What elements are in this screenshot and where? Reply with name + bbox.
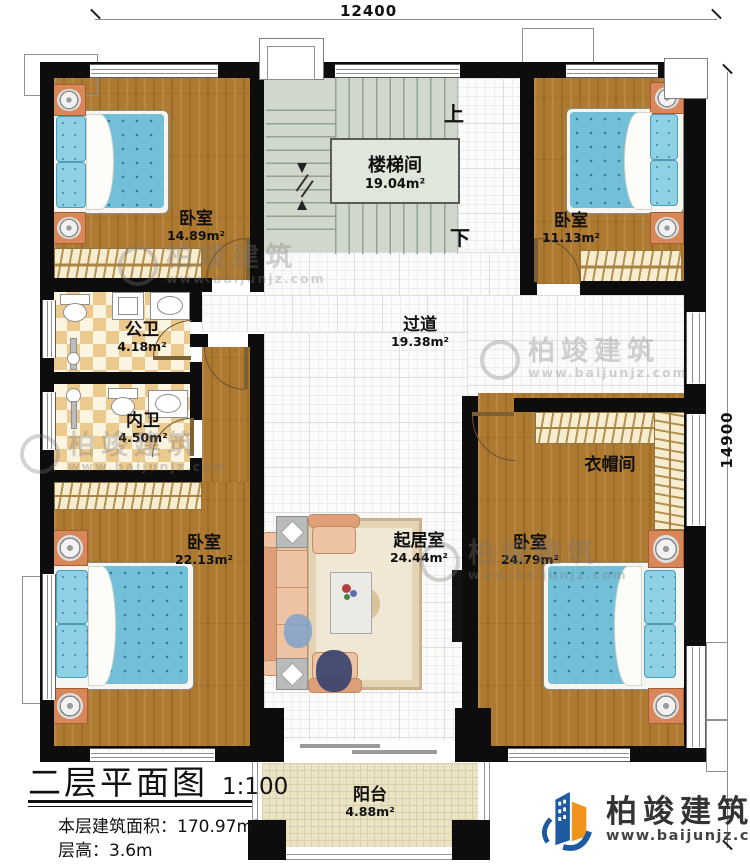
side-table: [276, 516, 308, 548]
nightstand: [648, 530, 684, 568]
room-label-bedroom-top-left: 卧室14.89m²: [167, 210, 225, 243]
stairwell-label: 楼梯间: [368, 151, 422, 177]
pillow: [644, 624, 676, 678]
roof-outline: [664, 58, 708, 99]
stair-treads-lower: [335, 198, 458, 254]
room-label-bedroom-bottom-right: 卧室24.79m²: [501, 534, 559, 567]
bed-sheet: [624, 112, 652, 210]
nightstand: [650, 212, 684, 244]
pier: [455, 708, 491, 762]
nightstand: [52, 530, 88, 566]
room-label-ensuite-bathroom: 内卫4.50m²: [118, 412, 167, 445]
room-label-public-bathroom: 公卫4.18m²: [117, 321, 166, 354]
nightstand: [52, 84, 86, 116]
nightstand: [52, 688, 88, 724]
door: [153, 356, 191, 360]
window-sill-outline: [706, 642, 728, 720]
floor-plan: 12400 14900 楼梯间 19.04m² 上 下: [0, 0, 750, 865]
stairwell-area: 19.04m²: [365, 177, 425, 192]
sliding-door: [284, 740, 455, 762]
pillow: [650, 114, 678, 160]
pillow: [56, 116, 86, 162]
window: [508, 748, 630, 762]
shower-fixture-icon: [71, 401, 77, 429]
stair-down-label: 下: [450, 222, 470, 251]
window-sill-outline: [706, 720, 728, 772]
room-label-living-room: 起居室24.44m²: [390, 532, 448, 565]
washer-icon: [118, 297, 138, 315]
brand-logo: 柏竣建筑 www.baijunjz.com: [538, 786, 750, 854]
coffee-table: [330, 572, 372, 634]
title-underline: [28, 806, 252, 807]
door: [534, 238, 538, 282]
room-label-cloakroom: 衣帽间: [585, 456, 636, 475]
nightstand: [648, 688, 684, 724]
window: [42, 574, 56, 700]
person-figure: [316, 650, 352, 692]
window: [335, 64, 460, 78]
brand-url: www.baijunjz.com: [606, 828, 750, 844]
sink-icon: [157, 296, 183, 315]
stair-treads-upper: [335, 78, 458, 140]
title-underline: [28, 800, 252, 803]
balcony-column: [452, 820, 490, 860]
room-label-bedroom-bottom-left: 卧室22.13m²: [175, 534, 233, 567]
pillow: [56, 624, 88, 678]
nightstand: [52, 212, 86, 244]
wardrobe: [535, 412, 659, 444]
roof-outline: [267, 46, 315, 80]
pillow: [56, 570, 88, 624]
side-table: [276, 658, 308, 690]
right-dimension-value: 14900: [718, 411, 736, 468]
top-dimension-value: 12400: [340, 2, 397, 20]
window: [42, 300, 56, 358]
pillow: [56, 162, 86, 208]
room-label-corridor: 过道19.38m²: [391, 316, 449, 349]
bed-sheet: [86, 114, 114, 210]
stair-break-arrow: [297, 163, 307, 173]
wardrobe: [54, 248, 202, 282]
bed-sheet: [614, 566, 642, 686]
bed-sheet: [88, 566, 116, 686]
pier: [258, 708, 284, 762]
door: [190, 418, 194, 456]
plan-title: 二层平面图1:100: [28, 756, 288, 804]
window: [90, 64, 218, 78]
armchair: [312, 526, 356, 554]
window: [686, 312, 706, 384]
door: [244, 347, 248, 389]
wardrobe: [580, 250, 682, 284]
shower-knob-icon: [67, 352, 80, 365]
floor-area-line: 本层建筑面积：170.97m²: [58, 812, 260, 837]
door: [472, 412, 514, 416]
brand-name: 柏竣建筑: [606, 796, 750, 829]
floor-height-line: 层高：3.6m: [58, 836, 153, 861]
window: [686, 414, 706, 526]
window: [42, 392, 56, 450]
toilet-icon: [63, 303, 87, 322]
room-label-balcony: 阳台4.88m²: [345, 786, 394, 819]
corridor-floor: [264, 252, 520, 295]
window: [566, 64, 658, 78]
plan-scale: 1:100: [222, 774, 288, 800]
corridor-floor: [467, 295, 684, 398]
wardrobe: [654, 412, 686, 530]
pillow: [644, 570, 676, 624]
wardrobe: [54, 482, 202, 510]
pillow: [650, 160, 678, 206]
stair-break-arrow: [297, 200, 307, 210]
flower-decor: [344, 594, 350, 600]
plan-title-text: 二层平面图: [28, 763, 208, 802]
brand-logo-icon: [538, 786, 596, 854]
door: [246, 238, 250, 280]
flower-decor: [350, 590, 357, 597]
person-figure: [284, 614, 312, 648]
stair-up-label: 上: [444, 98, 464, 127]
window: [686, 646, 706, 748]
stairwell-landing: 楼梯间 19.04m²: [330, 138, 460, 204]
room-label-bedroom-top-right: 卧室11.13m²: [542, 212, 600, 245]
